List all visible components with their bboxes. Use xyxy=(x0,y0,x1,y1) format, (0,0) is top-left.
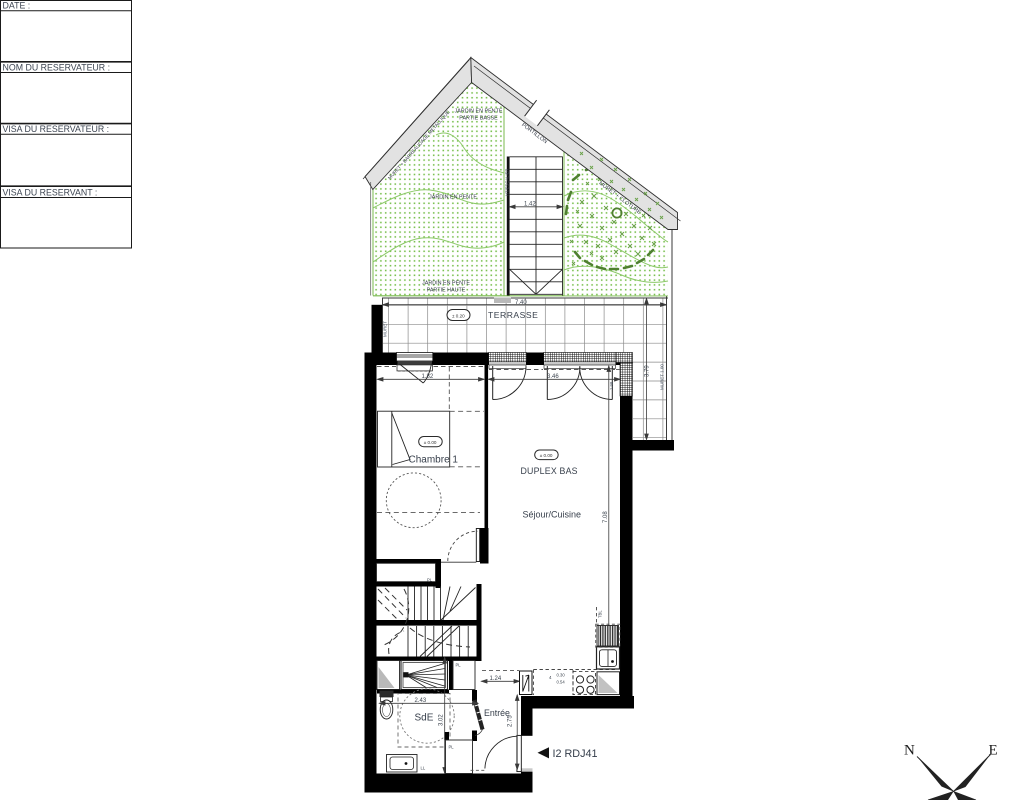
svg-text:I2 RDJ41: I2 RDJ41 xyxy=(553,748,598,760)
svg-text:JARDIN EN PENTE: JARDIN EN PENTE xyxy=(455,109,503,115)
svg-text:0.30: 0.30 xyxy=(557,673,566,678)
svg-text:PARTIE HAUTE: PARTIE HAUTE xyxy=(427,288,466,294)
svg-text:PL: PL xyxy=(456,663,462,668)
svg-text:E: E xyxy=(989,743,998,759)
svg-text:1.24: 1.24 xyxy=(490,676,502,682)
svg-text:MURET 1.00: MURET 1.00 xyxy=(660,364,665,390)
svg-text:TBL: TBL xyxy=(598,610,603,618)
svg-text:DUPLEX BAS: DUPLEX BAS xyxy=(521,466,578,476)
svg-text:± 0.20: ± 0.20 xyxy=(452,313,465,318)
svg-text:1.82: 1.82 xyxy=(422,374,434,380)
svg-text:TERRASSE: TERRASSE xyxy=(488,310,538,320)
svg-text:Chambre 1: Chambre 1 xyxy=(409,455,459,466)
svg-text:3.02: 3.02 xyxy=(439,714,445,726)
svg-text:3.46: 3.46 xyxy=(547,374,559,380)
svg-text:MURET: MURET xyxy=(383,321,388,337)
svg-text:N: N xyxy=(904,743,915,759)
svg-text:4: 4 xyxy=(549,675,552,680)
svg-text:VISA DU RESERVATEUR :: VISA DU RESERVATEUR : xyxy=(3,124,110,134)
svg-text:JARDIN EN PENTE: JARDIN EN PENTE xyxy=(429,195,477,201)
svg-text:1.42: 1.42 xyxy=(524,201,536,207)
svg-text:PL: PL xyxy=(449,745,455,750)
svg-text:DATE :: DATE : xyxy=(3,1,31,11)
svg-text:SdE: SdE xyxy=(415,713,434,724)
svg-text:± 0.00: ± 0.00 xyxy=(424,440,437,445)
svg-text:HT/ESCALIER: HT/ESCALIER xyxy=(504,169,509,196)
svg-text:PARTIE BASSE: PARTIE BASSE xyxy=(459,116,498,122)
svg-text:± 0.00: ± 0.00 xyxy=(540,453,553,458)
svg-text:VISA DU RESERVANT :: VISA DU RESERVANT : xyxy=(3,187,98,197)
svg-text:7.08: 7.08 xyxy=(603,511,609,523)
svg-text:2.43: 2.43 xyxy=(415,698,427,704)
svg-text:Séjour/Cuisine: Séjour/Cuisine xyxy=(523,510,582,520)
svg-text:Entrée: Entrée xyxy=(484,708,510,718)
svg-text:LL: LL xyxy=(421,766,426,771)
svg-text:2.75: 2.75 xyxy=(508,715,514,727)
svg-text:NOM DU RESERVATEUR :: NOM DU RESERVATEUR : xyxy=(3,63,111,73)
svg-text:1.98: 1.98 xyxy=(609,381,614,390)
svg-text:3.79: 3.79 xyxy=(645,365,651,377)
svg-text:0.54: 0.54 xyxy=(557,680,566,685)
svg-text:7.40: 7.40 xyxy=(515,300,527,306)
svg-text:JARDIN EN PENTE: JARDIN EN PENTE xyxy=(422,281,470,287)
